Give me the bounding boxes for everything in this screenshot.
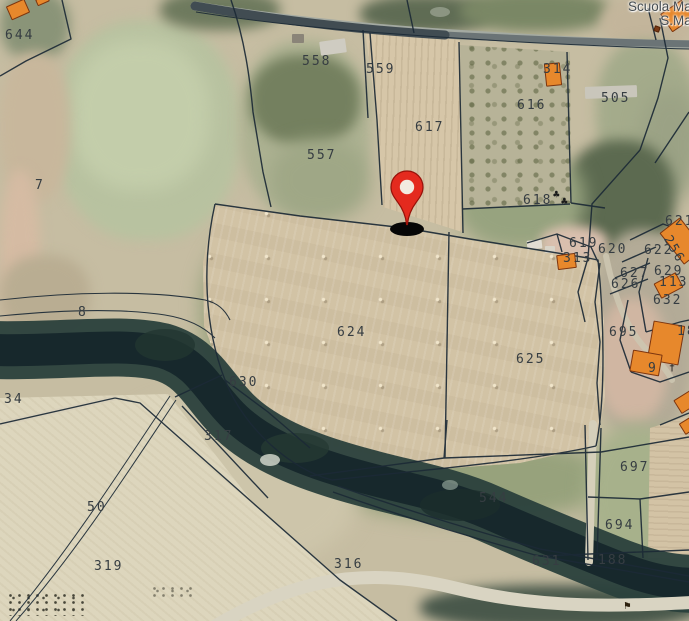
- parcel-label-697: 697: [620, 460, 649, 475]
- location-pin[interactable]: [383, 168, 431, 238]
- parcel-label-644: 644: [5, 28, 34, 43]
- parcel-label-624: 624: [337, 325, 366, 340]
- parcel-label-9: 9: [648, 361, 658, 376]
- parcel-label-316: 316: [334, 557, 363, 572]
- parcel-label-632: 632: [653, 293, 682, 308]
- parcel-label-557: 557: [307, 148, 336, 163]
- parcel-label-630: 630: [229, 375, 258, 390]
- place-label-line1: Scuola Mate: [628, 0, 689, 14]
- parcel-label-694: 694: [605, 518, 634, 533]
- parcel-label-617: 617: [415, 120, 444, 135]
- parcel-label-314: 314: [543, 62, 572, 77]
- parcel-label-7: 7: [35, 178, 45, 193]
- parcel-label-618: 618: [523, 193, 552, 208]
- place-label-scuola: Scuola Mate S.Marti: [628, 0, 689, 28]
- parcel-label-625: 625: [516, 352, 545, 367]
- map-canvas[interactable]: ♣ ♣ † ⚑ 64455855961731461650555776186196…: [0, 0, 689, 621]
- parcel-label-558: 558: [302, 54, 331, 69]
- parcel-label-620: 620: [598, 242, 627, 257]
- parcel-label-18: 18: [677, 324, 689, 339]
- parcel-label-544: 544: [479, 491, 508, 506]
- parcel-label-313: 313: [563, 251, 592, 266]
- parcel-label-619: 619: [569, 236, 598, 251]
- place-label-line2: S.Marti: [628, 14, 689, 28]
- parcel-label-50: 50: [87, 500, 107, 515]
- parcel-label-695: 695: [609, 325, 638, 340]
- parcel-label-616: 616: [517, 98, 546, 113]
- parcel-label-626: 626: [611, 277, 640, 292]
- parcel-label-631: 631: [532, 554, 561, 569]
- parcel-label-319: 319: [94, 559, 123, 574]
- parcel-labels-layer: 6445585596173146165055577618619620621622…: [0, 0, 689, 621]
- parcel-label-621: 621: [665, 214, 689, 229]
- pin-body: [391, 171, 423, 225]
- parcel-label-317: 317: [204, 429, 233, 444]
- parcel-label-34: 34: [4, 392, 24, 407]
- pin-hole: [400, 180, 414, 194]
- parcel-label-1136: 1136: [659, 275, 689, 290]
- parcel-label-559: 559: [366, 62, 395, 77]
- parcel-label-8: 8: [78, 305, 88, 320]
- parcel-label-188: 188: [598, 553, 627, 568]
- parcel-label-505: 505: [601, 91, 630, 106]
